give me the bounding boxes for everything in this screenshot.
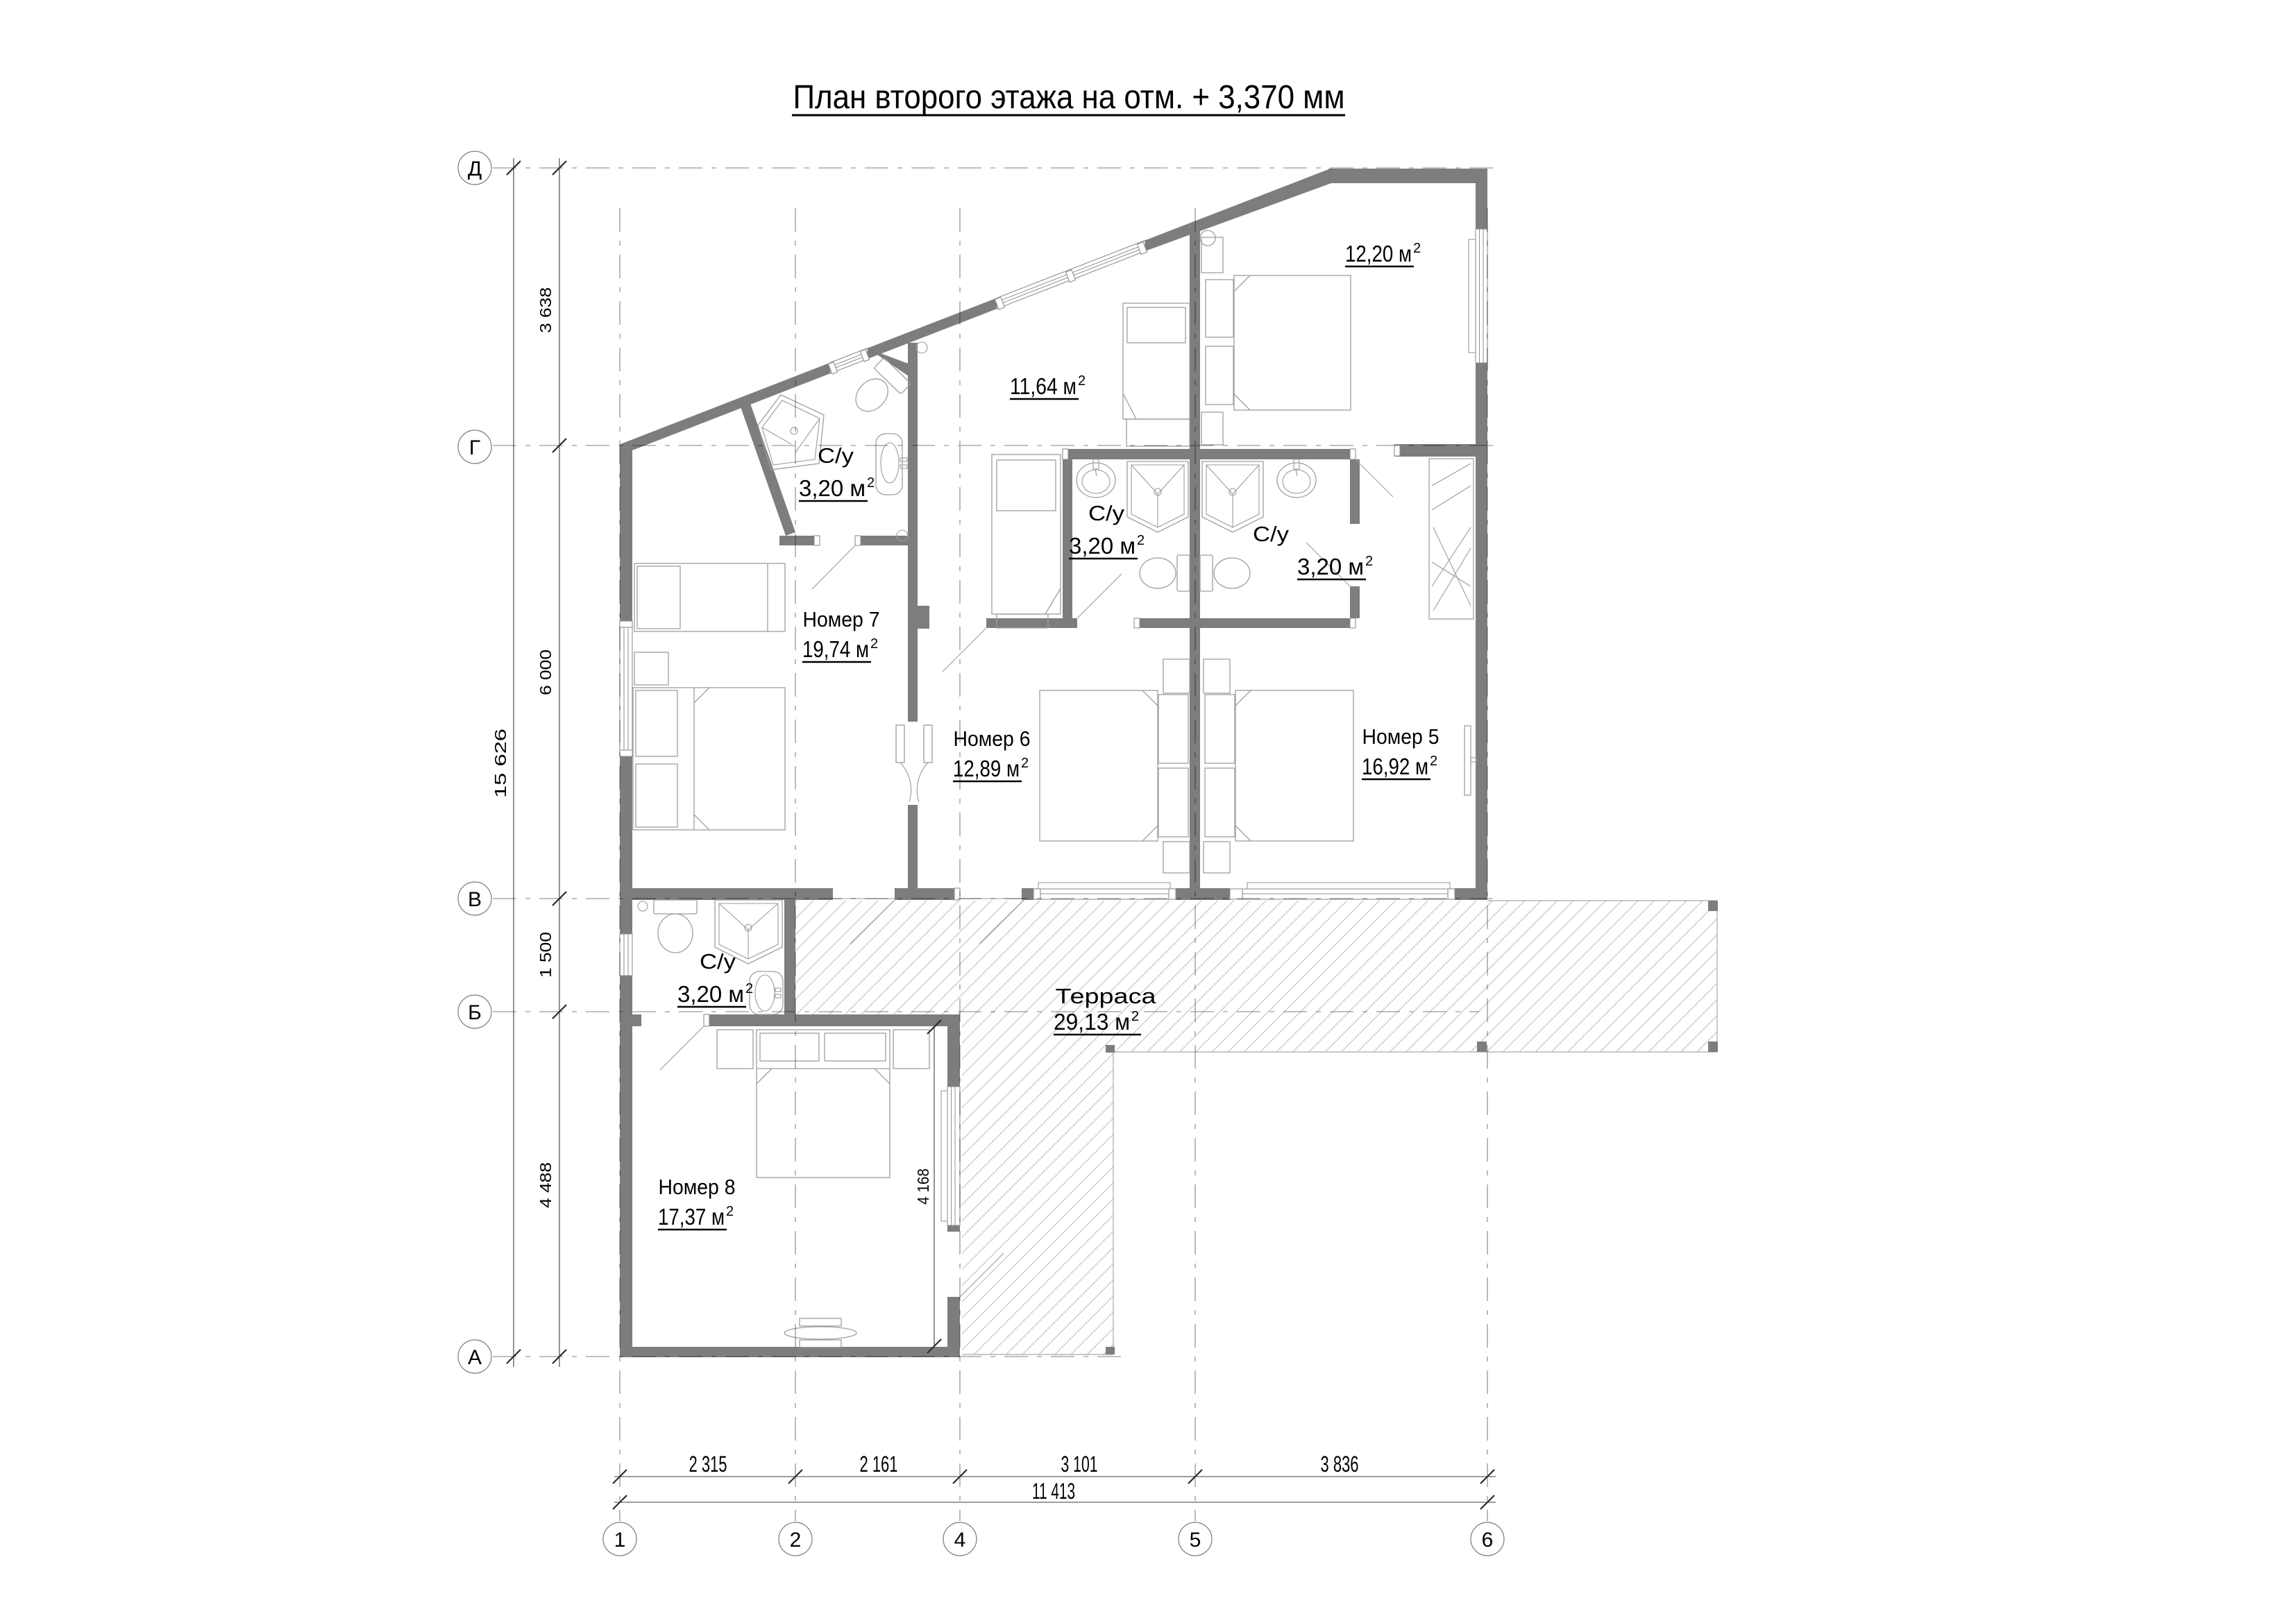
svg-text:19,74 м: 19,74 м bbox=[802, 636, 869, 662]
svg-text:2: 2 bbox=[1430, 754, 1437, 769]
svg-text:2 315: 2 315 bbox=[689, 1452, 727, 1477]
svg-text:11,64 м: 11,64 м bbox=[1010, 373, 1077, 399]
svg-text:2 161: 2 161 bbox=[860, 1452, 898, 1477]
svg-text:1: 1 bbox=[614, 1529, 626, 1552]
svg-text:Б: Б bbox=[468, 1001, 482, 1024]
svg-text:2: 2 bbox=[870, 636, 878, 652]
svg-text:Номер 6: Номер 6 bbox=[954, 726, 1031, 751]
svg-text:Номер 5: Номер 5 bbox=[1362, 724, 1440, 749]
svg-text:3,20 м: 3,20 м bbox=[677, 981, 744, 1007]
svg-text:Д: Д bbox=[468, 158, 482, 180]
svg-text:План второго этажа на отм. + 3: План второго этажа на отм. + 3,370 мм bbox=[793, 79, 1345, 116]
svg-text:17,37 м: 17,37 м bbox=[658, 1204, 725, 1230]
svg-text:2: 2 bbox=[1413, 241, 1421, 256]
svg-text:2: 2 bbox=[1021, 756, 1029, 771]
svg-text:6: 6 bbox=[1482, 1529, 1494, 1552]
svg-text:15 626: 15 626 bbox=[491, 729, 509, 798]
svg-text:3 638: 3 638 bbox=[537, 287, 555, 333]
svg-text:1 500: 1 500 bbox=[537, 932, 555, 978]
svg-text:12,20 м: 12,20 м bbox=[1345, 241, 1412, 266]
svg-text:16,92 м: 16,92 м bbox=[1362, 754, 1428, 779]
svg-text:6 000: 6 000 bbox=[537, 649, 555, 695]
svg-text:С/у: С/у bbox=[818, 443, 854, 468]
svg-text:В: В bbox=[468, 888, 482, 911]
svg-text:С/у: С/у bbox=[700, 949, 736, 974]
svg-text:2: 2 bbox=[1078, 373, 1086, 389]
svg-text:2: 2 bbox=[1131, 1009, 1139, 1024]
svg-text:3 101: 3 101 bbox=[1061, 1452, 1098, 1477]
svg-text:2: 2 bbox=[745, 981, 753, 996]
svg-text:3 836: 3 836 bbox=[1321, 1452, 1359, 1477]
svg-text:4: 4 bbox=[954, 1529, 966, 1552]
svg-text:Терраса: Терраса bbox=[1056, 984, 1157, 1008]
svg-text:5: 5 bbox=[1190, 1529, 1201, 1552]
svg-text:2: 2 bbox=[790, 1529, 802, 1552]
svg-text:3,20 м: 3,20 м bbox=[1297, 554, 1364, 579]
svg-text:Г: Г bbox=[469, 436, 480, 459]
svg-text:3,20 м: 3,20 м bbox=[799, 475, 866, 501]
svg-text:2: 2 bbox=[867, 475, 875, 491]
svg-text:А: А bbox=[468, 1346, 482, 1369]
svg-text:2: 2 bbox=[726, 1204, 734, 1219]
svg-text:29,13 м: 29,13 м bbox=[1054, 1009, 1130, 1035]
svg-text:С/у: С/у bbox=[1253, 522, 1290, 546]
svg-text:11 413: 11 413 bbox=[1032, 1479, 1075, 1504]
svg-text:3,20 м: 3,20 м bbox=[1069, 533, 1136, 559]
svg-text:12,89 м: 12,89 м bbox=[953, 756, 1020, 781]
svg-text:2: 2 bbox=[1365, 554, 1373, 569]
svg-text:4 488: 4 488 bbox=[537, 1162, 555, 1208]
svg-text:Номер 7: Номер 7 bbox=[803, 607, 880, 631]
svg-text:Номер 8: Номер 8 bbox=[659, 1175, 736, 1199]
svg-text:2: 2 bbox=[1137, 533, 1145, 548]
svg-text:С/у: С/у bbox=[1088, 501, 1125, 525]
svg-text:4 168: 4 168 bbox=[914, 1169, 932, 1205]
